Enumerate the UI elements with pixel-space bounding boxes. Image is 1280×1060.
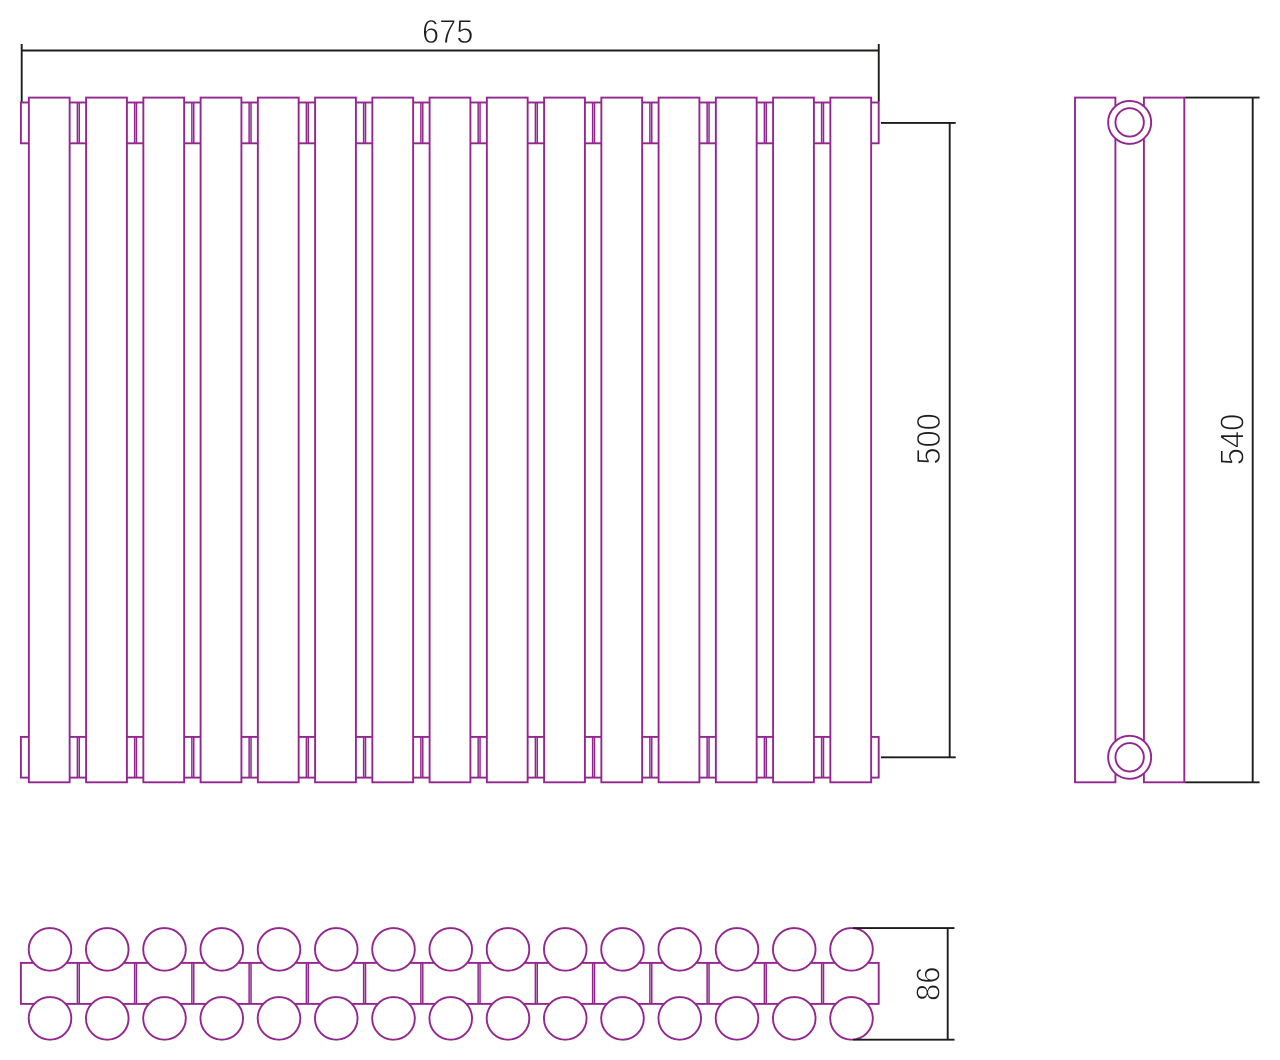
svg-text:540: 540 xyxy=(1214,414,1251,466)
svg-text:86: 86 xyxy=(911,966,948,1001)
svg-text:500: 500 xyxy=(911,413,948,465)
svg-text:675: 675 xyxy=(422,14,474,51)
